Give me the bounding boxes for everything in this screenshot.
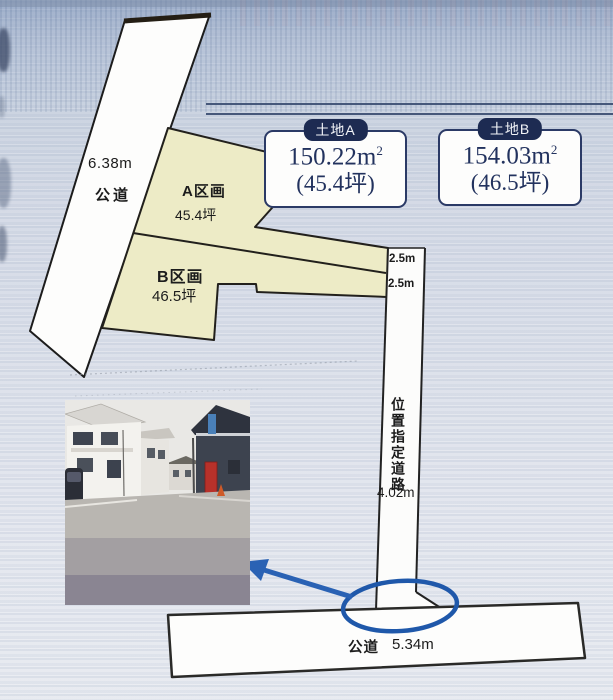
land-a-area-m2: 150.22m2 [266, 144, 405, 171]
double-rule [206, 103, 613, 115]
right-house-red-door [205, 462, 217, 495]
mid-house-window [147, 448, 155, 458]
land-b-card: 土地B 154.03m2 (46.5坪) [438, 129, 582, 206]
land-a-area-m2-value: 150.22m [288, 143, 376, 170]
land-a-area-tsubo: (45.4坪) [266, 171, 405, 196]
ground-speckle-line [75, 389, 262, 396]
land-a-tag: 土地A [303, 119, 367, 141]
street-photo [65, 400, 250, 605]
left-house-window [107, 460, 121, 478]
parcel-a-name-label: A区画 [182, 180, 226, 201]
mid-house-window [158, 450, 165, 459]
left-road-name-label: 公道 [95, 184, 131, 205]
setback-a-label: 2.5m [389, 253, 415, 265]
land-b-area-m2: 154.03m2 [440, 143, 580, 170]
utility-pole [193, 438, 194, 498]
left-house-window [101, 432, 118, 445]
right-house-blue-window [208, 414, 216, 434]
parcel-b-name-label: B区画 [157, 263, 204, 287]
land-b-tag: 土地B [478, 118, 542, 140]
photo-road-shadow [65, 575, 250, 605]
left-house-window [73, 432, 93, 445]
distant-house-window [173, 470, 179, 477]
mid-house [141, 438, 169, 495]
ground-speckle-line [70, 361, 358, 375]
land-a-card: 土地A 150.22m2 (45.4坪) [264, 130, 407, 208]
land-b-area-m2-sup: 2 [551, 142, 558, 157]
left-road-width-label: 6.38m [88, 155, 132, 172]
private-road-width-label: 4.02m [377, 485, 415, 500]
bottom-road-name-label: 公道 [348, 636, 379, 657]
right-house-trim [196, 433, 250, 436]
land-a-area-m2-sup: 2 [376, 143, 383, 158]
land-b-area-tsubo: (46.5坪) [440, 170, 580, 195]
distant-house-window [185, 470, 191, 477]
parcel-a-area-label: 45.4坪 [175, 205, 216, 225]
bottom-road-width-label: 5.34m [392, 636, 434, 653]
right-house-window [228, 460, 240, 474]
scanned-land-plan-page: 6.38m 公道 A区画 45.4坪 B区画 46.5坪 2.5m 2.5m 位… [0, 0, 613, 700]
right-house-body [196, 433, 250, 500]
setback-b-label: 2.5m [388, 278, 414, 290]
car-window [67, 472, 81, 482]
parcel-b-area-label: 46.5坪 [152, 285, 196, 306]
photo-arrow-shaft [264, 570, 352, 597]
land-b-area-m2-value: 154.03m [463, 142, 551, 169]
private-road-name-label: 位置指定道路 [388, 397, 408, 493]
